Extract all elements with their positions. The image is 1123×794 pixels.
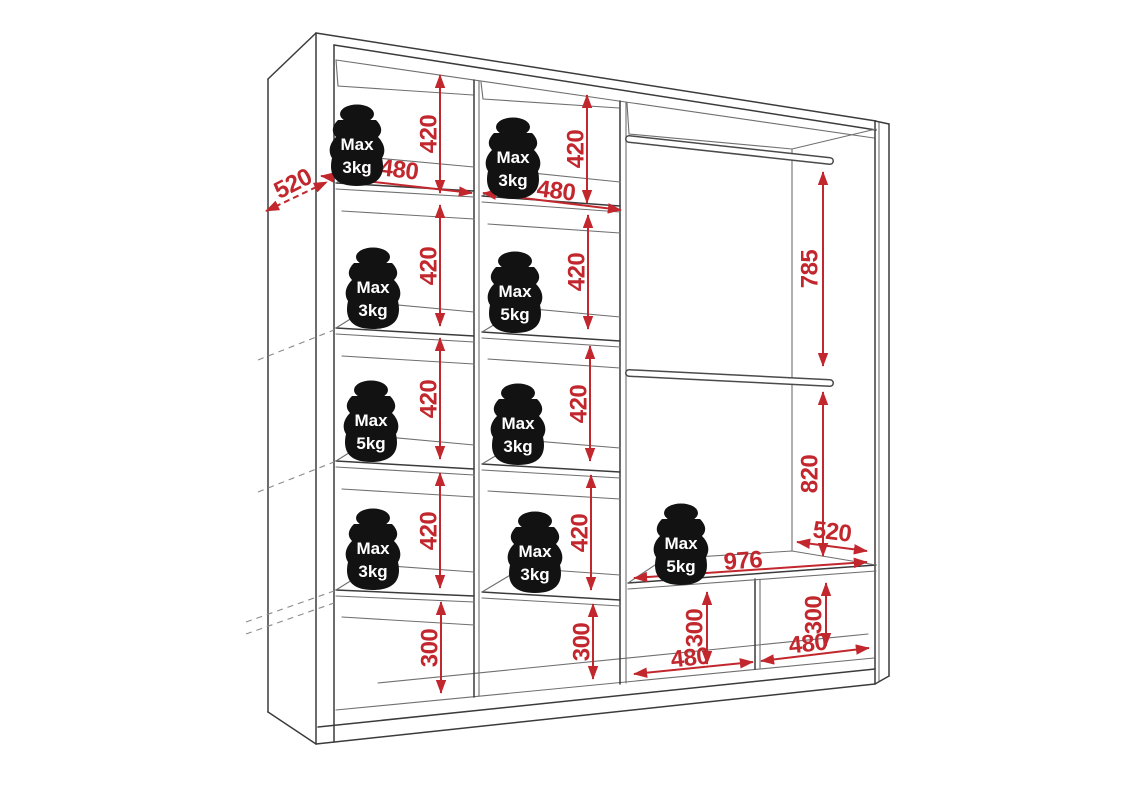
weight-label-line2: 3kg (342, 158, 371, 177)
weight-label-line1: Max (340, 135, 374, 154)
bottom-edge-outer (316, 684, 875, 744)
weight-label-line1: Max (356, 278, 390, 297)
dim-label-col1-row2: 420 (416, 247, 443, 286)
kettlebell-weight-icon: Max 3kg (330, 105, 385, 187)
weight-label-line2: 5kg (500, 305, 529, 324)
ceiling-back-col1 (336, 60, 473, 95)
weight-label-line2: 5kg (356, 434, 385, 453)
weight-label-line2: 3kg (358, 562, 387, 581)
weight-label-line1: Max (501, 414, 535, 433)
weight-label-line2: 3kg (498, 171, 527, 190)
weight-label-line1: Max (354, 411, 388, 430)
dim-label-wardrobe-depth: 520 (270, 163, 317, 205)
dim-label-col1-width: 480 (378, 154, 420, 186)
dim-label-col1-bottom: 300 (417, 629, 444, 668)
weight-label-line2: 3kg (520, 565, 549, 584)
dim-label-cubby-right-width: 480 (787, 629, 828, 660)
hanging-rail-top (629, 139, 830, 161)
weight-label-line1: Max (664, 534, 698, 553)
dim-label-col1-row1: 420 (416, 115, 443, 154)
kettlebell-weight-icon: Max 3kg (508, 512, 563, 594)
dim-label-bench-width: 976 (723, 546, 763, 576)
dim-label-col2-width: 480 (535, 175, 577, 207)
dim-label-col1-row3: 420 (416, 380, 443, 419)
dim-label-bench-depth: 520 (811, 516, 853, 548)
kettlebell-weight-icon: Max 3kg (346, 509, 401, 591)
base-front-edge (318, 669, 875, 727)
top-right-slant (875, 121, 889, 124)
weight-label-line1: Max (498, 282, 532, 301)
weight-label-line2: 3kg (503, 437, 532, 456)
dim-label-rail-820: 820 (797, 455, 824, 494)
kettlebell-weight-icon: Max 3kg (491, 384, 546, 466)
weight-label-line1: Max (496, 148, 530, 167)
kettlebell-weight-icon: Max 5kg (654, 504, 709, 586)
kettlebell-weight-icon: Max 5kg (344, 381, 399, 463)
bottom-right-slant (875, 676, 889, 684)
weight-label-line1: Max (518, 542, 552, 561)
top-edge-outer (316, 33, 876, 121)
dim-label-col2-row4: 420 (567, 514, 594, 553)
kettlebell-weight-icon: Max 5kg (488, 252, 543, 334)
dim-label-col2-bottom: 300 (569, 623, 596, 662)
dim-label-col2-row1: 420 (563, 130, 590, 169)
weight-label-line1: Max (356, 539, 390, 558)
kettlebell-weight-icon: Max 3kg (346, 248, 401, 330)
dim-label-cubby-left-height: 300 (682, 609, 709, 648)
dim-label-col2-row3: 420 (566, 385, 593, 424)
hanging-rail-middle (629, 373, 830, 383)
top-left-slant (268, 33, 316, 79)
dim-label-col2-row2: 420 (564, 253, 591, 292)
dim-label-rail-785: 785 (797, 250, 824, 289)
wardrobe-dimension-diagram: 420 420 420 420 300 420 420 420 420 300 … (0, 0, 1123, 794)
dim-label-col1-row4: 420 (416, 512, 443, 551)
weight-label-line2: 3kg (358, 301, 387, 320)
kettlebell-weight-icon: Max 3kg (486, 118, 541, 200)
weight-label-line2: 5kg (666, 557, 695, 576)
projection-dashes (246, 330, 334, 634)
dim-label-cubby-left-width: 480 (669, 643, 710, 674)
bottom-left-slant (268, 712, 316, 744)
